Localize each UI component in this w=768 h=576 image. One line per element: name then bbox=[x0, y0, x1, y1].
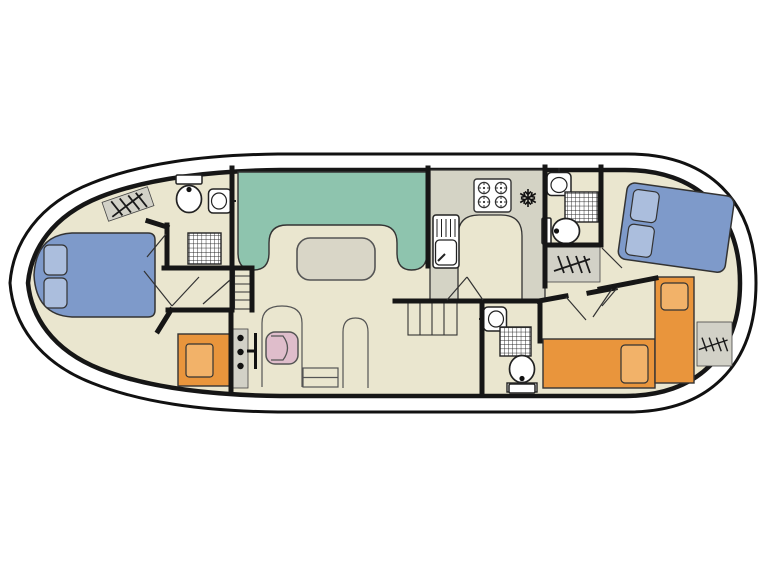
helm-instrument bbox=[237, 349, 243, 355]
shower-tray bbox=[500, 327, 531, 356]
galley-sink bbox=[433, 215, 459, 268]
stern-berth-pillow bbox=[661, 283, 688, 310]
shower-tray bbox=[565, 192, 598, 222]
mid-stairs bbox=[408, 302, 457, 335]
shower-tray bbox=[188, 233, 221, 264]
hob-burner-icon bbox=[495, 182, 506, 193]
boat-deck-plan: Boat deck plan — interior layout (bow le… bbox=[0, 0, 768, 576]
hob-burner-icon bbox=[478, 196, 489, 207]
steps-shaft bbox=[235, 268, 252, 309]
saloon-table bbox=[297, 238, 375, 280]
toilet-icon bbox=[176, 175, 202, 213]
bow-bed-pillow bbox=[44, 278, 67, 308]
stern-bed-pillow bbox=[625, 224, 655, 258]
hob-burner-icon bbox=[478, 182, 489, 193]
toilet-icon bbox=[509, 356, 535, 394]
stern-berth-pillow bbox=[621, 345, 648, 383]
helm-seat bbox=[266, 332, 298, 364]
hob-burner-icon bbox=[495, 196, 506, 207]
helm-instrument bbox=[237, 363, 243, 369]
stern-bed-pillow bbox=[630, 189, 660, 223]
helm-instrument bbox=[237, 335, 243, 341]
bow-bed-pillow bbox=[44, 245, 67, 275]
bow-wardrobe-seat bbox=[186, 344, 213, 377]
bow-steps bbox=[235, 268, 252, 309]
floor-plan: Boat deck plan — interior layout (bow le… bbox=[0, 0, 768, 576]
toilet-icon bbox=[542, 218, 580, 244]
